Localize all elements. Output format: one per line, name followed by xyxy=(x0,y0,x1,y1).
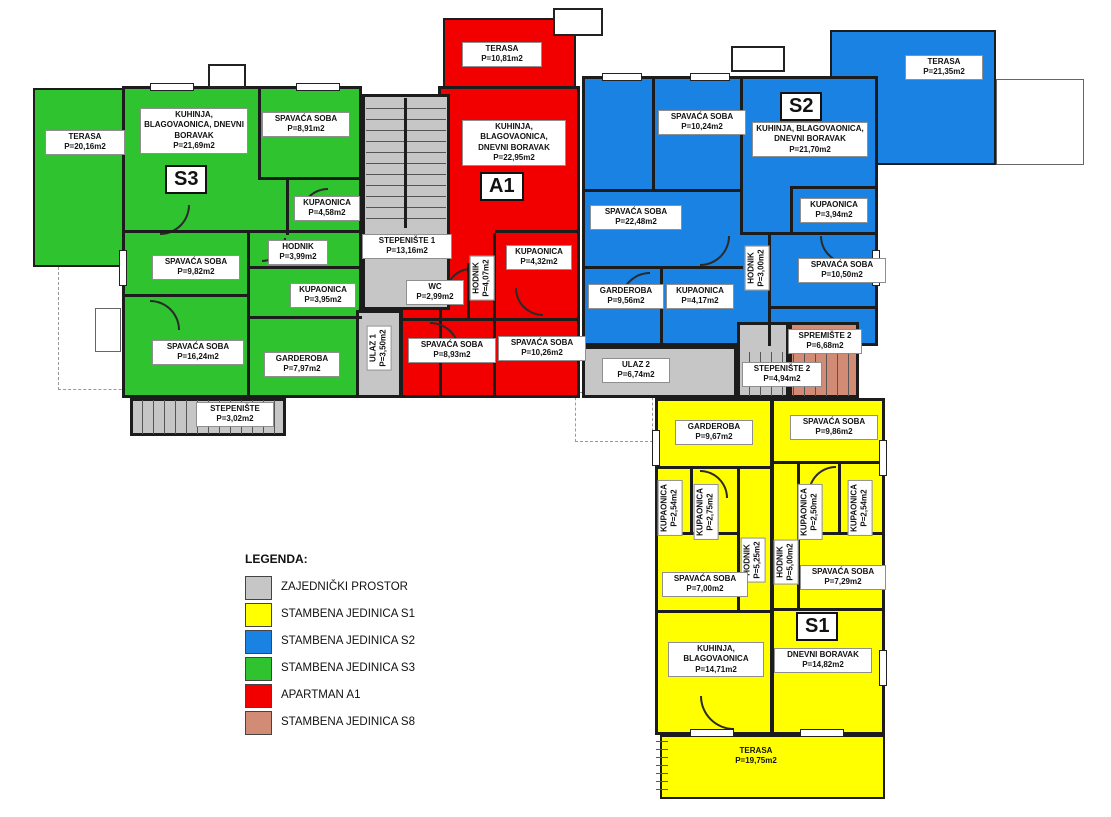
legend-swatch-common xyxy=(245,576,272,600)
room-label-kupaonica1-s3: KUPAONICA P=4,58m2 xyxy=(294,196,360,221)
window xyxy=(690,73,730,81)
wall xyxy=(582,189,743,192)
window xyxy=(800,729,844,737)
legend-item-s3: STAMBENA JEDINICA S3 xyxy=(245,657,308,684)
room-label-garderoba-s2: GARDEROBA P=9,56m2 xyxy=(588,284,664,309)
floor-plan: TERASA P=20,16m2 KUHINJA, BLAGOVAONICA, … xyxy=(0,0,1111,817)
unit-badge-s3: S3 xyxy=(165,165,207,194)
room-label-kuhinja-a1: KUHINJA, BLAGOVAONICA, DNEVNI BORAVAK P=… xyxy=(462,120,566,166)
bay-outline-left xyxy=(95,308,121,352)
room-label-spavaca2-a1: SPAVAĆA SOBA P=10,26m2 xyxy=(498,336,586,361)
wall xyxy=(258,86,261,180)
room-label-wc-a1: WC P=2,99m2 xyxy=(406,280,464,305)
unit-badge-s1: S1 xyxy=(796,612,838,641)
legend-swatch-s2 xyxy=(245,630,272,654)
wall xyxy=(774,608,885,611)
room-label-kuhinja-s1: KUHINJA, BLAGOVAONICA P=14,71m2 xyxy=(668,642,764,677)
room-label-spavaca2-s3: SPAVAĆA SOBA P=9,82m2 xyxy=(152,255,240,280)
room-label-kupaonica2-s2: KUPAONICA P=4,17m2 xyxy=(666,284,734,309)
wall xyxy=(495,230,580,233)
room-label-stepeniste-s3: STEPENIŠTE P=3,02m2 xyxy=(196,402,274,427)
room-label-kupaonica-a1: KUPAONICA P=4,32m2 xyxy=(506,245,572,270)
wall xyxy=(790,186,878,189)
unit-badge-a1: A1 xyxy=(480,172,524,201)
stair-rail-1 xyxy=(404,98,407,228)
room-label-hodnik-s3: HODNIK P=3,99m2 xyxy=(268,240,328,265)
legend-swatch-s8 xyxy=(245,711,272,735)
window xyxy=(150,83,194,91)
room-label-terasa-s3: TERASA P=20,16m2 xyxy=(45,130,125,155)
room-label-hodnik-a1: HODNIK P=4,07m2 xyxy=(470,255,495,300)
room-label-ulaz1: ULAZ 1 P=3,50m2 xyxy=(367,325,392,370)
wall xyxy=(122,294,250,297)
wall xyxy=(790,189,793,235)
wall xyxy=(771,306,878,309)
room-label-stepeniste1: STEPENIŠTE 1 P=13,16m2 xyxy=(362,234,452,259)
wall xyxy=(690,469,693,535)
room-label-hodnik2-s1: HODNIK P=5,00m2 xyxy=(774,539,799,584)
dashed-extension-entry2 xyxy=(575,392,653,442)
wall xyxy=(838,464,841,534)
room-label-spavaca1-s1: SPAVAĆA SOBA P=9,86m2 xyxy=(790,415,878,440)
legend-title: LEGENDA: xyxy=(245,552,308,566)
chimney-stairwell xyxy=(553,8,603,36)
room-label-stepeniste2: STEPENIŠTE 2 P=4,94m2 xyxy=(742,362,822,387)
window xyxy=(879,650,887,686)
legend-item-s2: STAMBENA JEDINICA S2 xyxy=(245,630,308,657)
room-label-kupaonica1-s1: KUPAONICA P=2,54m2 xyxy=(658,480,683,536)
wall xyxy=(740,232,878,235)
legend-item-a1: APARTMAN A1 xyxy=(245,684,308,711)
room-label-terasa-s2: TERASA P=21,35m2 xyxy=(905,55,983,80)
legend-item-s1: STAMBENA JEDINICA S1 xyxy=(245,603,308,630)
window xyxy=(296,83,340,91)
room-label-spavaca3-s1: SPAVAĆA SOBA P=7,29m2 xyxy=(800,565,886,590)
legend-swatch-s3 xyxy=(245,657,272,681)
terrace-s3 xyxy=(33,88,124,267)
unit-badge-s2: S2 xyxy=(780,92,822,121)
wall xyxy=(774,461,885,464)
wall xyxy=(286,180,289,235)
room-label-kupaonica3-s1: KUPAONICA P=2,50m2 xyxy=(798,484,823,540)
room-label-kupaonica1-s2: KUPAONICA P=3,94m2 xyxy=(800,198,868,223)
room-label-kupaonica4-s1: KUPAONICA P=2,54m2 xyxy=(848,480,873,536)
room-label-garderoba-s1: GARDEROBA P=9,67m2 xyxy=(675,420,753,445)
legend-item-common: ZAJEDNIČKI PROSTOR xyxy=(245,576,308,603)
wall xyxy=(402,318,580,321)
wall xyxy=(250,266,362,269)
room-label-terasa-a1: TERASA P=10,81m2 xyxy=(462,42,542,67)
room-label-spavaca3-s2: SPAVAĆA SOBA P=10,50m2 xyxy=(798,258,886,283)
wall xyxy=(655,466,772,469)
window xyxy=(652,430,660,466)
chimney-s3 xyxy=(208,64,246,88)
wall xyxy=(122,230,362,233)
room-label-spavaca1-s2: SPAVAĆA SOBA P=10,24m2 xyxy=(658,110,746,135)
wall xyxy=(250,316,362,319)
window xyxy=(879,440,887,476)
room-label-dnevni-s1: DNEVNI BORAVAK P=14,82m2 xyxy=(774,648,872,673)
legend: LEGENDA: ZAJEDNIČKI PROSTOR STAMBENA JED… xyxy=(245,552,308,738)
room-label-kuhinja-s2: KUHINJA, BLAGOVAONICA, DNEVNI BORAVAK P=… xyxy=(752,122,868,157)
wall xyxy=(655,610,772,613)
room-label-ulaz2: ULAZ 2 P=6,74m2 xyxy=(602,358,670,383)
window xyxy=(690,729,734,737)
room-label-spremiste2: SPREMIŠTE 2 P=6,68m2 xyxy=(788,329,862,354)
room-label-spavaca1-s3: SPAVAĆA SOBA P=8,91m2 xyxy=(262,112,350,137)
room-label-spavaca1-a1: SPAVAĆA SOBA P=8,93m2 xyxy=(408,338,496,363)
room-label-hodnik-s2: HODNIK P=3,00m2 xyxy=(745,245,770,290)
room-label-terasa-s1: TERASA P=19,75m2 xyxy=(718,745,794,768)
room-label-kuhinja-s3: KUHINJA, BLAGOVAONICA, DNEVNI BORAVAK P=… xyxy=(140,108,248,154)
legend-item-s8: STAMBENA JEDINICA S8 xyxy=(245,711,308,738)
room-label-spavaca2-s1: SPAVAĆA SOBA P=7,00m2 xyxy=(662,572,748,597)
chimney-s2 xyxy=(731,46,785,72)
room-label-kupaonica2-s3: KUPAONICA P=3,95m2 xyxy=(290,283,356,308)
room-label-kupaonica2-s1: KUPAONICA P=2,75m2 xyxy=(694,484,719,540)
wall xyxy=(652,76,655,192)
wall xyxy=(258,177,362,180)
room-label-spavaca2-s2: SPAVAĆA SOBA P=22,48m2 xyxy=(590,205,682,230)
stair-treads-terrace-s1 xyxy=(656,737,668,797)
room-label-spavaca3-s3: SPAVAĆA SOBA P=16,24m2 xyxy=(152,340,244,365)
window xyxy=(602,73,642,81)
wall xyxy=(740,76,743,235)
window xyxy=(119,250,127,286)
neighbor-outline-right xyxy=(996,79,1084,165)
legend-swatch-a1 xyxy=(245,684,272,708)
room-label-garderoba-s3: GARDEROBA P=7,97m2 xyxy=(264,352,340,377)
legend-swatch-s1 xyxy=(245,603,272,627)
